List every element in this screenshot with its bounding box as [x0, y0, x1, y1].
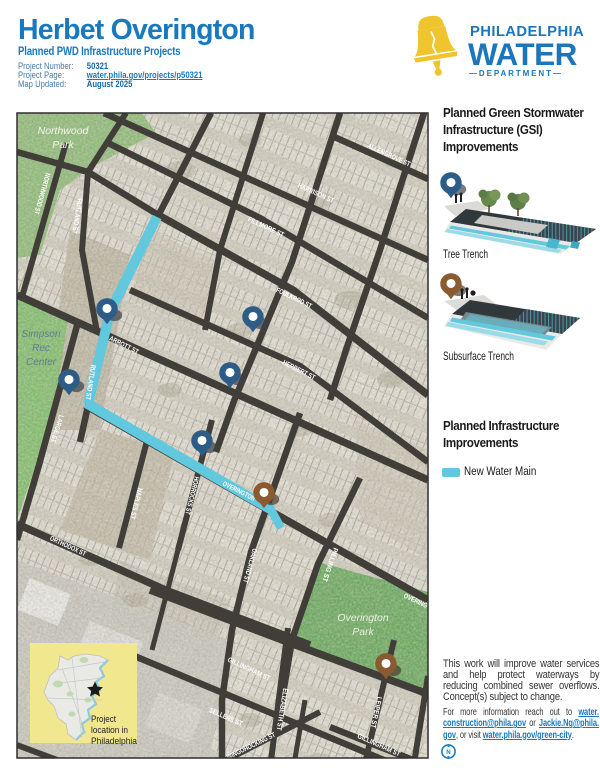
svg-text:N: N	[446, 749, 451, 756]
svg-text:Philadelphia: Philadelphia	[91, 736, 138, 747]
svg-text:Park: Park	[52, 139, 74, 151]
svg-text:UNITY ST: UNITY ST	[26, 759, 55, 776]
svg-text:Project: Project	[91, 714, 116, 725]
svg-text:Center: Center	[26, 357, 57, 368]
svg-text:location in: location in	[91, 725, 128, 736]
svg-text:Rec: Rec	[32, 343, 50, 354]
svg-text:Park: Park	[352, 626, 374, 638]
svg-text:Subsurface Trench: Subsurface Trench	[443, 349, 514, 363]
svg-text:Tree Trench: Tree Trench	[443, 247, 488, 261]
svg-text:Overington: Overington	[337, 612, 389, 624]
svg-text:Simpson: Simpson	[22, 329, 61, 340]
svg-text:Northwood: Northwood	[38, 125, 90, 137]
